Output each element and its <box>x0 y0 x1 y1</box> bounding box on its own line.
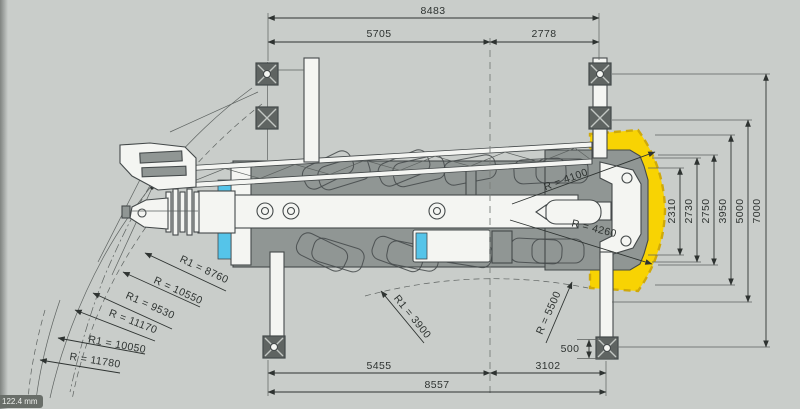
outrigger-pad <box>596 337 618 359</box>
front-cab-glass-bottom <box>218 231 231 259</box>
dim-stack-2730-label: 2730 <box>684 199 695 224</box>
sheave-stack <box>166 189 199 235</box>
dim-front-top-label: 5705 <box>367 29 392 40</box>
crane-outrigger-diagram: 8483 5705 2778 2310 2730 2750 3950 5000 … <box>0 0 800 409</box>
outrigger-pad <box>256 63 278 85</box>
left-edge-shadow <box>0 0 8 409</box>
dim-overall-top-label: 8483 <box>421 6 446 17</box>
outrigger-pad <box>263 336 285 358</box>
dim-offset-500-label: 500 <box>561 344 580 355</box>
dim-stack-7000-label: 7000 <box>752 199 763 224</box>
dim-stack-2310-label: 2310 <box>667 199 678 224</box>
outrigger-beam-front-bottom <box>270 252 284 346</box>
outrigger-beam-rear-bottom <box>600 252 613 347</box>
telescopic-boom <box>233 195 578 228</box>
truss-support <box>466 168 476 196</box>
dim-stack-3950-label: 3950 <box>718 199 729 224</box>
dim-bottom-overall-label: 8557 <box>425 380 450 391</box>
dim-stack-5000-label: 5000 <box>735 199 746 224</box>
dim-bottom-front-label: 5455 <box>367 361 392 372</box>
hook-block <box>130 198 168 229</box>
outrigger-pad <box>256 107 278 129</box>
dim-bottom-rear-label: 3102 <box>536 361 561 372</box>
outrigger-pad <box>589 107 611 129</box>
boom-nose <box>198 191 235 233</box>
measurement-badge: 122.4 mm <box>0 395 43 408</box>
dim-rear-top-label: 2778 <box>532 29 557 40</box>
outrigger-pad <box>589 63 611 85</box>
outrigger-beam-front-top <box>304 58 319 162</box>
dim-stack-2750-label: 2750 <box>701 199 712 224</box>
